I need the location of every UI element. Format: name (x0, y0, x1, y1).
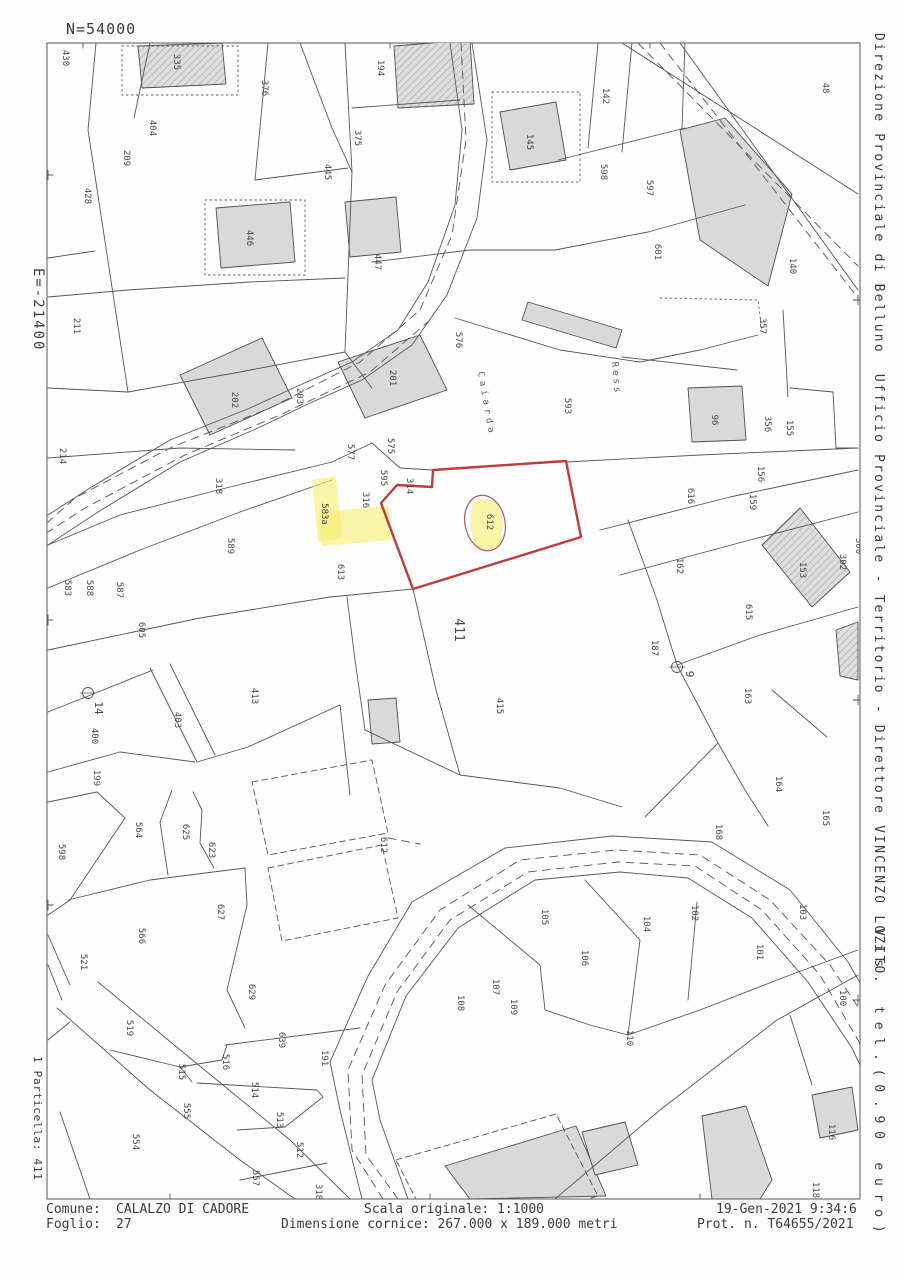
svg-text:202: 202 (229, 392, 239, 408)
svg-text:168: 168 (713, 824, 723, 840)
svg-text:446: 446 (244, 230, 254, 246)
svg-text:107: 107 (490, 979, 500, 995)
svg-text:159: 159 (747, 494, 757, 510)
svg-text:595: 595 (378, 470, 388, 486)
north-coordinate-label: N=54000 (66, 20, 136, 38)
svg-text:588: 588 (84, 580, 94, 596)
svg-text:302: 302 (837, 554, 847, 570)
svg-text:156: 156 (755, 466, 765, 482)
svg-text:513: 513 (274, 1112, 284, 1128)
svg-text:589: 589 (225, 538, 235, 554)
svg-text:102: 102 (689, 905, 699, 921)
svg-text:625: 625 (180, 824, 190, 840)
svg-text:514: 514 (249, 1082, 259, 1098)
svg-text:194: 194 (375, 60, 385, 76)
svg-text:106: 106 (579, 950, 589, 966)
scale-label: Scala originale: 1:1000 (364, 1202, 544, 1217)
svg-text:164: 164 (773, 776, 783, 792)
svg-text:577: 577 (345, 444, 355, 460)
svg-text:142: 142 (600, 88, 610, 104)
svg-text:627: 627 (215, 904, 225, 920)
svg-text:587: 587 (114, 582, 124, 598)
svg-text:201: 201 (387, 370, 397, 386)
svg-text:14: 14 (92, 701, 105, 715)
svg-text:214: 214 (57, 448, 67, 464)
foglio-label: Foglio: (46, 1217, 101, 1232)
frame-dimension-label: Dimensione cornice: 267.000 x 189.000 me… (281, 1217, 618, 1232)
svg-text:316: 316 (360, 492, 370, 508)
svg-text:110: 110 (624, 1030, 634, 1046)
svg-text:521: 521 (78, 954, 88, 970)
svg-text:613: 613 (335, 564, 345, 580)
map-canvas: 4303353764042094454281943751451425985974… (0, 0, 905, 1280)
svg-text:519: 519 (124, 1020, 134, 1036)
svg-text:447: 447 (372, 254, 382, 270)
svg-text:9: 9 (683, 671, 696, 678)
svg-text:103: 103 (797, 904, 807, 920)
svg-text:612: 612 (484, 514, 494, 530)
svg-text:555: 555 (181, 1103, 191, 1119)
svg-text:411: 411 (451, 618, 466, 641)
svg-text:48: 48 (820, 83, 830, 94)
svg-text:403: 403 (172, 712, 182, 728)
svg-text:601: 601 (652, 244, 662, 260)
svg-text:428: 428 (82, 188, 92, 204)
svg-text:623: 623 (206, 842, 216, 858)
foglio-value: 27 (116, 1217, 132, 1232)
svg-text:554: 554 (130, 1134, 140, 1150)
svg-text:576: 576 (453, 332, 463, 348)
svg-text:639: 639 (276, 1032, 286, 1048)
svg-text:163: 163 (742, 688, 752, 704)
svg-text:105: 105 (539, 909, 549, 925)
svg-text:162: 162 (674, 558, 684, 574)
svg-text:116: 116 (826, 1124, 836, 1140)
svg-text:564: 564 (133, 822, 143, 838)
comune-value: CALALZO DI CADORE (116, 1202, 249, 1217)
print-date: 19-Gen-2021 9:34:6 (716, 1202, 857, 1217)
cadastral-sheet: 4303353764042094454281943751451425985974… (0, 0, 905, 1280)
svg-text:96: 96 (709, 415, 719, 426)
svg-text:404: 404 (147, 120, 157, 136)
svg-text:593: 593 (562, 398, 572, 414)
svg-text:357: 357 (757, 318, 767, 334)
particella-reference-label: 1 Particella: 411 (31, 1056, 44, 1180)
svg-text:118: 118 (810, 1182, 820, 1198)
svg-text:211: 211 (71, 318, 81, 334)
svg-text:140: 140 (787, 258, 797, 274)
svg-text:615: 615 (743, 604, 753, 620)
svg-text:516: 516 (220, 1054, 230, 1070)
protocol-number: Prot. n. T64655/2021 (697, 1217, 854, 1232)
svg-text:415: 415 (494, 698, 504, 714)
svg-text:Caiarda: Caiarda (475, 371, 496, 438)
svg-text:597: 597 (644, 180, 654, 196)
svg-text:605: 605 (136, 622, 146, 638)
comune-label: Comune: (46, 1202, 101, 1217)
svg-text:512: 512 (294, 1142, 304, 1158)
svg-text:598: 598 (56, 844, 66, 860)
svg-text:318: 318 (313, 1184, 323, 1200)
svg-text:314: 314 (404, 478, 414, 494)
svg-text:430: 430 (60, 50, 70, 66)
svg-text:187: 187 (649, 640, 659, 656)
svg-text:191: 191 (319, 1050, 329, 1066)
svg-text:616: 616 (685, 488, 695, 504)
svg-text:209: 209 (121, 150, 131, 166)
svg-text:335: 335 (171, 54, 181, 70)
svg-text:612: 612 (378, 837, 388, 853)
svg-text:300: 300 (853, 538, 863, 554)
svg-text:356: 356 (762, 416, 772, 432)
svg-text:598: 598 (598, 164, 608, 180)
provincial-office-header: Direzione Provinciale di Belluno Ufficio… (871, 33, 886, 976)
svg-text:566: 566 (136, 928, 146, 944)
svg-text:413: 413 (249, 688, 259, 704)
svg-text:445: 445 (322, 164, 332, 180)
svg-text:375: 375 (352, 130, 362, 146)
svg-text:145: 145 (524, 134, 534, 150)
visura-fee-label: Vis. tel.(0.90 euro) (871, 928, 886, 1241)
svg-text:318: 318 (213, 478, 223, 494)
svg-text:557: 557 (250, 1170, 260, 1186)
svg-text:203: 203 (294, 388, 304, 404)
svg-text:199: 199 (91, 770, 101, 786)
svg-text:400: 400 (89, 728, 99, 744)
svg-text:376: 376 (259, 80, 269, 96)
svg-text:109: 109 (508, 999, 518, 1015)
svg-text:583: 583 (62, 580, 72, 596)
svg-text:100: 100 (837, 990, 847, 1006)
svg-text:629: 629 (246, 984, 256, 1000)
svg-text:165: 165 (820, 810, 830, 826)
svg-text:575: 575 (385, 438, 395, 454)
svg-text:101: 101 (754, 944, 764, 960)
east-coordinate-label: E=-21400 (30, 268, 46, 351)
svg-text:583a: 583a (319, 503, 329, 525)
svg-text:104: 104 (641, 916, 651, 932)
svg-text:Ress: Ress (609, 361, 622, 395)
svg-text:108: 108 (455, 995, 465, 1011)
svg-text:153: 153 (797, 562, 807, 578)
svg-text:155: 155 (784, 420, 794, 436)
svg-text:515: 515 (176, 1064, 186, 1080)
